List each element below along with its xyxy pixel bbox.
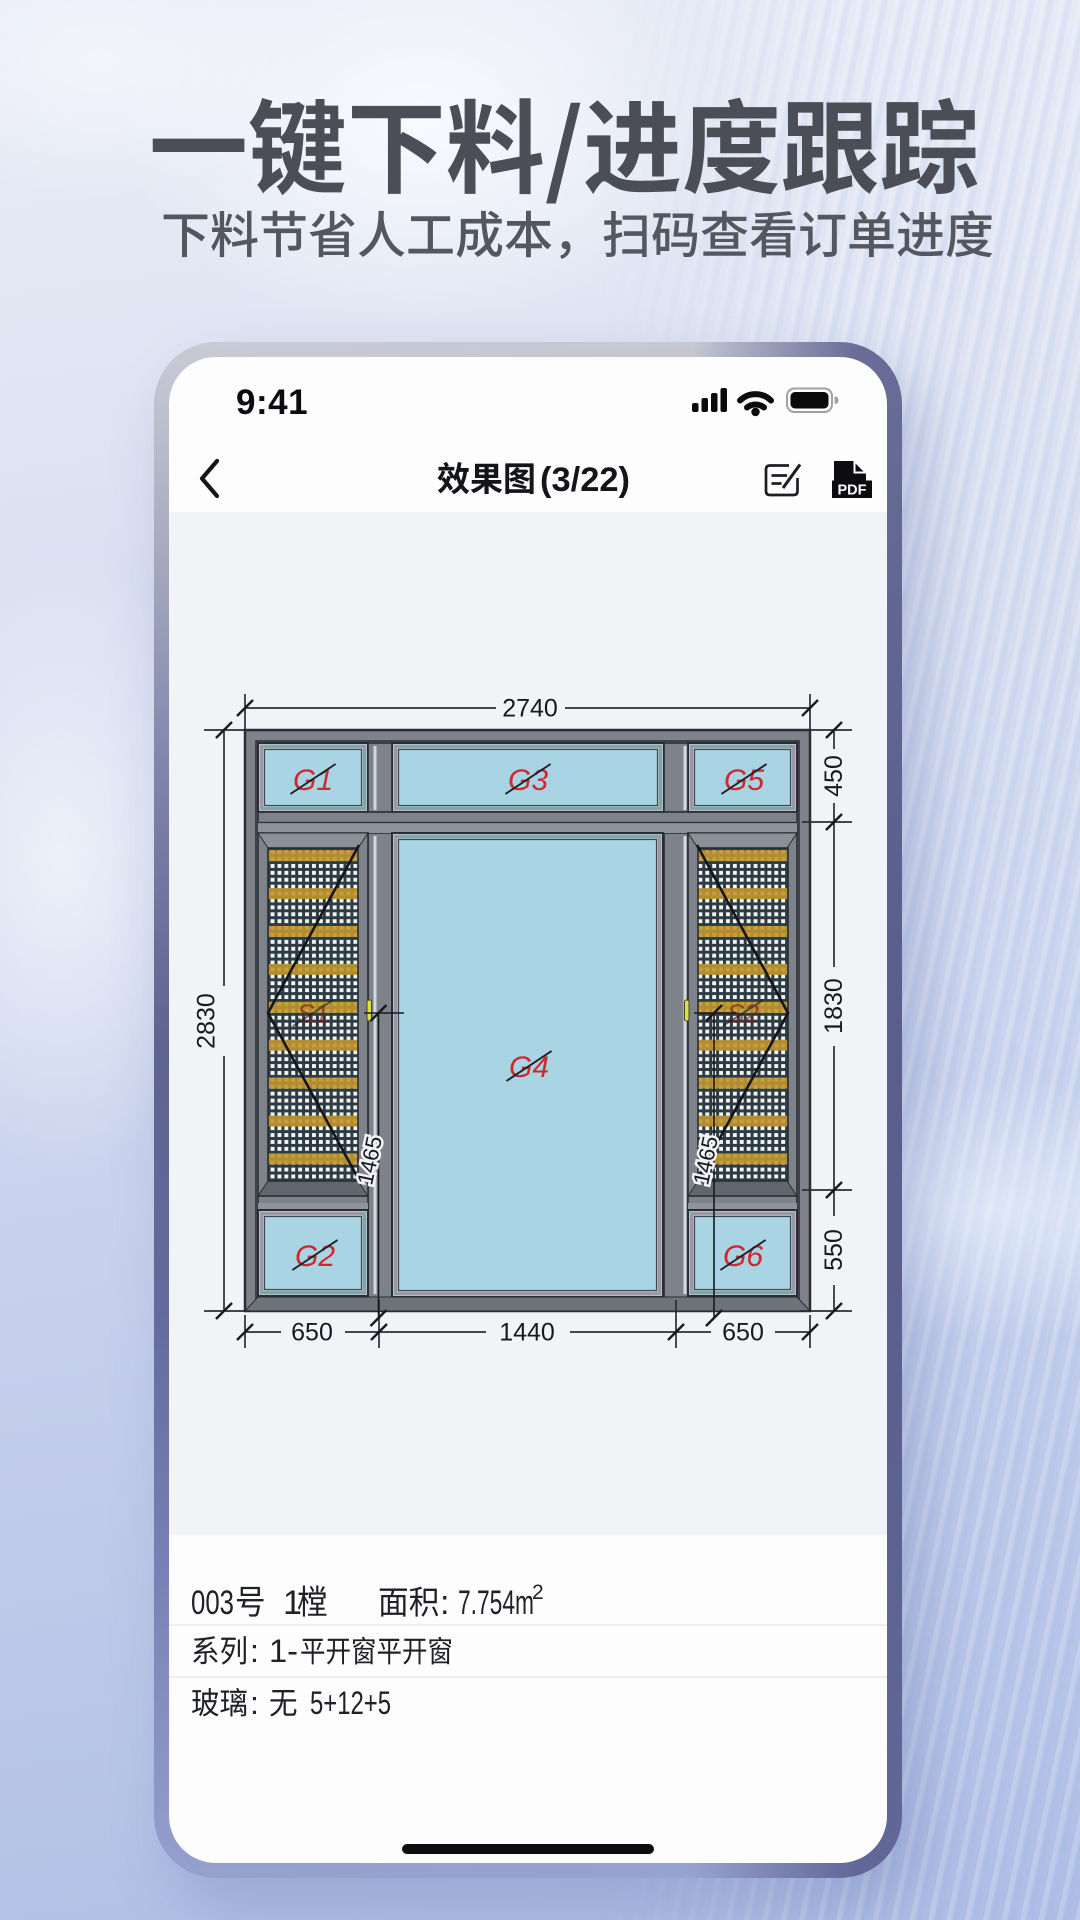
svg-text:5+12+5: 5+12+5 bbox=[310, 1685, 391, 1721]
svg-text::: : bbox=[250, 1685, 259, 1721]
